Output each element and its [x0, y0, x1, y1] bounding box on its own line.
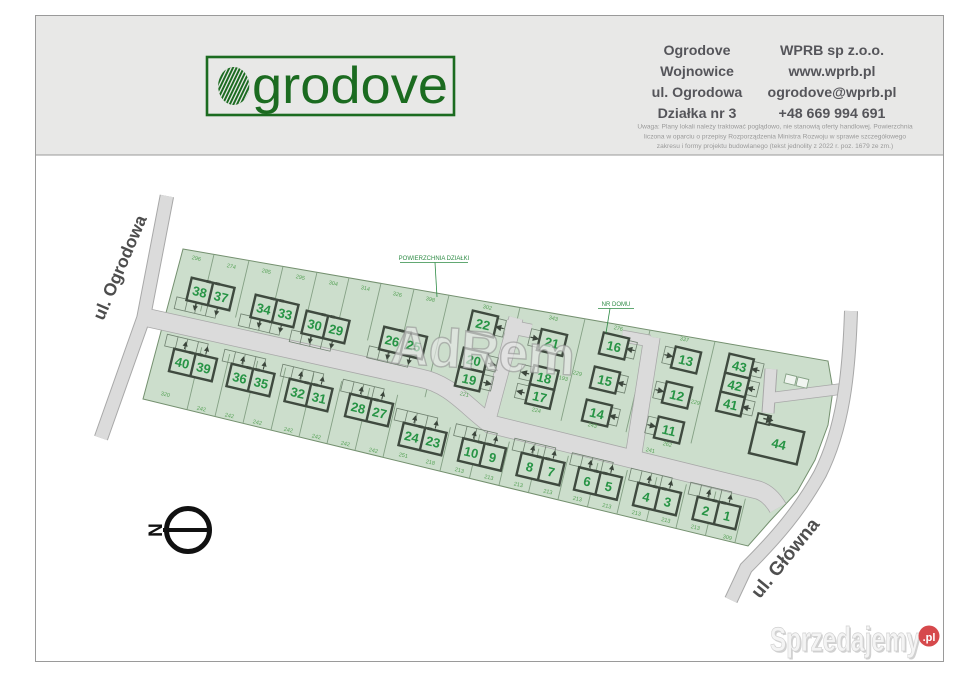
svg-text:Sprzedajemy: Sprzedajemy: [770, 621, 920, 659]
svg-text:ul. Ogrodowa: ul. Ogrodowa: [652, 85, 743, 101]
svg-text:N: N: [146, 523, 167, 537]
svg-text:ogrodove@wprb.pl: ogrodove@wprb.pl: [768, 85, 897, 101]
svg-text:liczona w oparciu o przepisy R: liczona w oparciu o przepisy Rozporządze…: [644, 133, 906, 140]
svg-text:Wojnowice: Wojnowice: [660, 64, 734, 80]
svg-text:NR DOMU: NR DOMU: [602, 302, 631, 308]
svg-text:AdRem: AdRem: [389, 315, 577, 387]
svg-text:Ogrodove: Ogrodove: [663, 43, 730, 59]
svg-text:WPRB sp z.o.o.: WPRB sp z.o.o.: [780, 43, 884, 59]
svg-text:grodove: grodove: [252, 57, 448, 115]
svg-text:Działka nr 3: Działka nr 3: [658, 106, 737, 122]
svg-text:+48 669 994 691: +48 669 994 691: [779, 106, 886, 122]
svg-text:POWIERZCHNIA DZIAŁKI: POWIERZCHNIA DZIAŁKI: [399, 256, 470, 262]
svg-text:Uwaga: Plany lokali należy tra: Uwaga: Plany lokali należy traktować pog…: [637, 124, 913, 131]
svg-text:www.wprb.pl: www.wprb.pl: [788, 64, 876, 80]
svg-text:.pl: .pl: [923, 632, 936, 644]
svg-text:zakresu i formy projektu budow: zakresu i formy projektu budowlanego (te…: [657, 143, 893, 150]
